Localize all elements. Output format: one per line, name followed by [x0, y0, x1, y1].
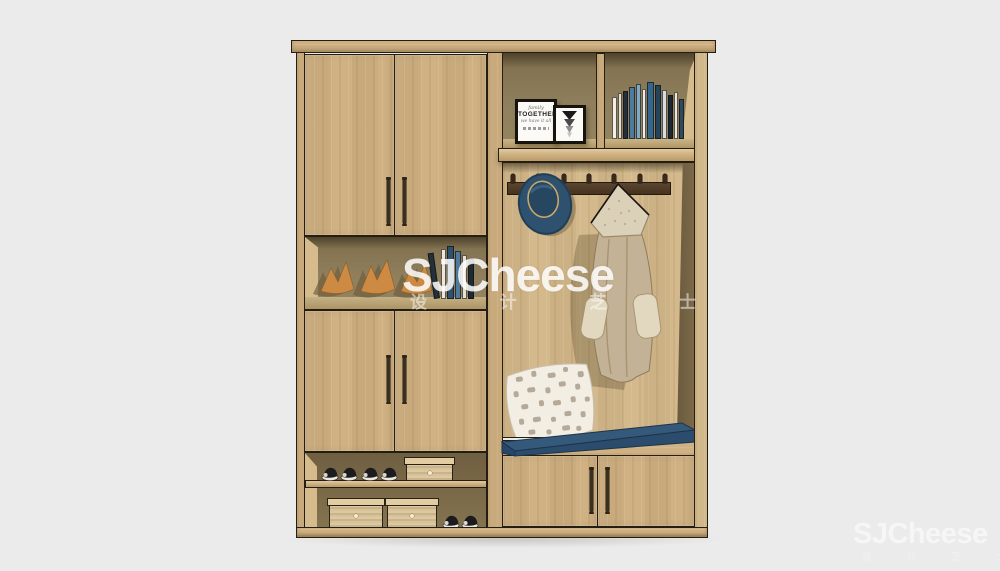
shoe-shelf-board	[305, 480, 487, 488]
top-compartments: family TOGETHER we have it all	[502, 52, 696, 149]
book-spine	[629, 87, 635, 139]
niche-right-side-panel	[677, 163, 695, 438]
upper-left-door-handle	[387, 179, 390, 224]
lower-left-door-handle	[387, 357, 390, 402]
shoe-area-side-panel	[305, 453, 317, 528]
display-shelf-books	[433, 245, 487, 299]
scene-entryway-cabinet-render: family TOGETHER we have it all	[0, 0, 1000, 571]
book-spine	[662, 90, 667, 139]
top-shelf-books	[611, 81, 689, 139]
book-spine	[674, 92, 678, 139]
book-spine	[623, 91, 628, 139]
upper-left-door	[304, 54, 395, 236]
lower-left-door	[304, 310, 395, 452]
figurine-ornaments	[311, 247, 439, 299]
triangle-art-frame	[553, 105, 586, 144]
bench-left-door	[502, 455, 598, 527]
cabinet-base-board	[296, 527, 708, 538]
book-spine	[668, 95, 673, 139]
watermark-corner-subtext: 设 计 芝 士	[862, 548, 1000, 563]
together-art-frame: family TOGETHER we have it all	[515, 99, 557, 144]
basket-lid	[385, 498, 439, 506]
book-spine	[642, 89, 646, 139]
coat-area-shelf-board	[498, 148, 702, 162]
storage-basket-1	[406, 462, 453, 481]
basket-clasp	[410, 514, 414, 518]
basket-lid	[404, 457, 455, 465]
lower-right-door	[394, 310, 487, 452]
book-spine	[647, 82, 654, 139]
triangle-art	[556, 108, 583, 141]
book-spine	[679, 99, 684, 139]
book-spine	[462, 255, 467, 299]
shoe-shelf-area	[304, 452, 487, 528]
frame-squiggle	[523, 127, 549, 130]
book-spine	[455, 251, 461, 299]
bench-right-door-handle	[606, 469, 609, 512]
compartment-divider	[596, 53, 605, 149]
basket-clasp	[428, 471, 432, 475]
upper-right-door-handle	[403, 179, 406, 224]
book-spine	[655, 85, 661, 139]
display-shelf	[304, 236, 487, 310]
book-spine	[636, 84, 641, 139]
bench-cushion	[497, 415, 699, 463]
book-spine	[612, 97, 617, 139]
coat-niche	[502, 162, 695, 438]
lower-right-door-handle	[403, 357, 406, 402]
basket-clasp	[354, 514, 358, 518]
bench-left-door-handle	[590, 469, 593, 512]
basket-lid	[327, 498, 385, 506]
book-spine	[468, 259, 474, 299]
book-spine	[447, 246, 454, 299]
upper-right-door	[394, 54, 487, 236]
watermark-corner: SJCheese	[853, 518, 988, 551]
sneakers-pair-1	[321, 463, 359, 481]
bench-right-door	[597, 455, 695, 527]
frame-script-line2: we have it all	[518, 119, 554, 125]
cabinet-right-side-panel	[694, 52, 708, 528]
sneakers-pair-2	[361, 463, 399, 481]
sneakers-pair-3	[442, 511, 480, 528]
book-spine	[441, 249, 446, 299]
storage-basket-3	[387, 503, 437, 528]
storage-basket-2	[329, 503, 383, 528]
frame-together-text: TOGETHER	[518, 111, 554, 119]
book-spine	[618, 93, 622, 139]
